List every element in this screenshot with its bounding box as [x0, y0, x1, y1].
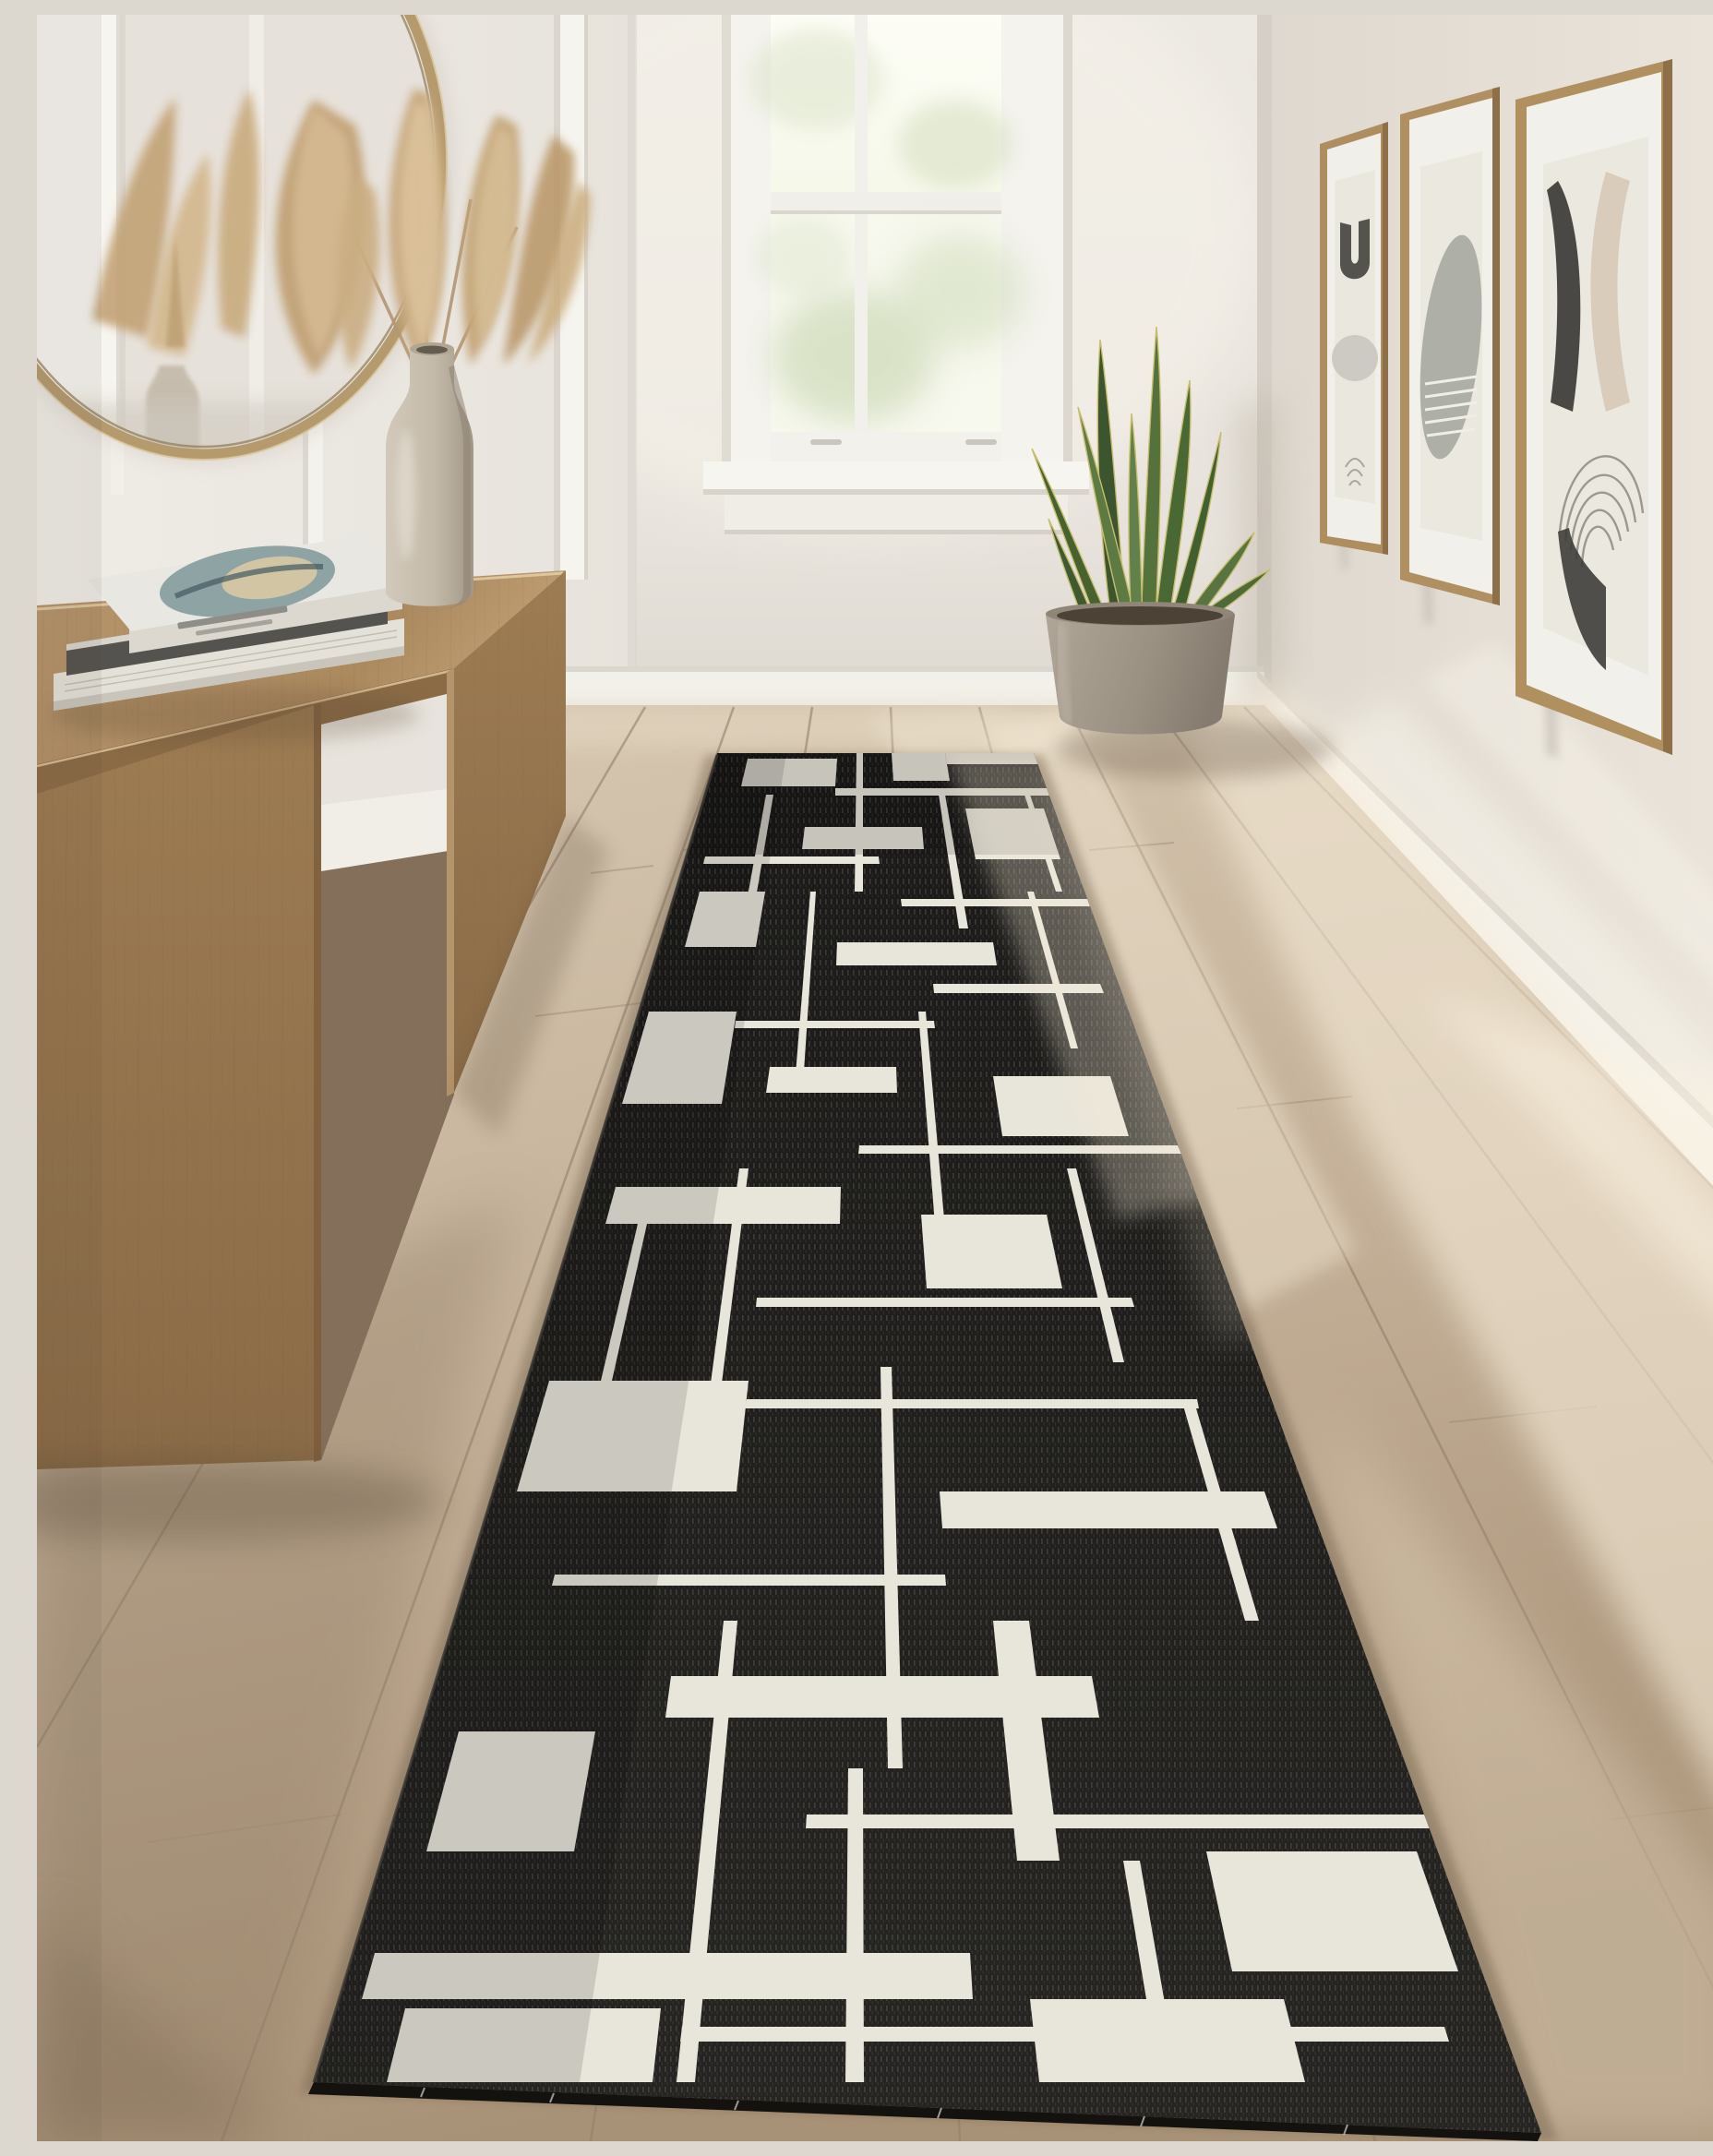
rug-motif	[745, 1399, 1199, 1408]
rug-motif	[836, 942, 997, 965]
window-mullion-upper	[855, 15, 868, 194]
rug-motif	[735, 1021, 935, 1028]
sash-lift-left	[810, 439, 842, 445]
window	[703, 15, 1089, 534]
hallway-scene: Sunlit hallway interior with a black and…	[37, 15, 1713, 2141]
wall-corner-left	[628, 15, 637, 716]
art1-circle-shape	[1332, 335, 1378, 381]
vase-opening	[416, 346, 448, 354]
rug-motif	[766, 1067, 897, 1093]
pot-soil	[1057, 606, 1223, 625]
art-frame-1	[1320, 122, 1388, 569]
art-frame-2	[1400, 87, 1500, 624]
console-end-panel-edge	[447, 668, 454, 1096]
rug-motif	[806, 1815, 1430, 1828]
window-mullion-lower	[855, 214, 868, 439]
sash-lift-right	[965, 439, 997, 445]
art-frame-3	[1515, 59, 1672, 758]
rug-motif	[921, 1215, 1062, 1288]
window-bottom-rail	[771, 432, 1001, 461]
window-sill	[703, 461, 1089, 493]
rug-motif	[1206, 1851, 1458, 1971]
window-apron	[725, 495, 1068, 533]
rug-motif	[756, 1298, 1134, 1307]
